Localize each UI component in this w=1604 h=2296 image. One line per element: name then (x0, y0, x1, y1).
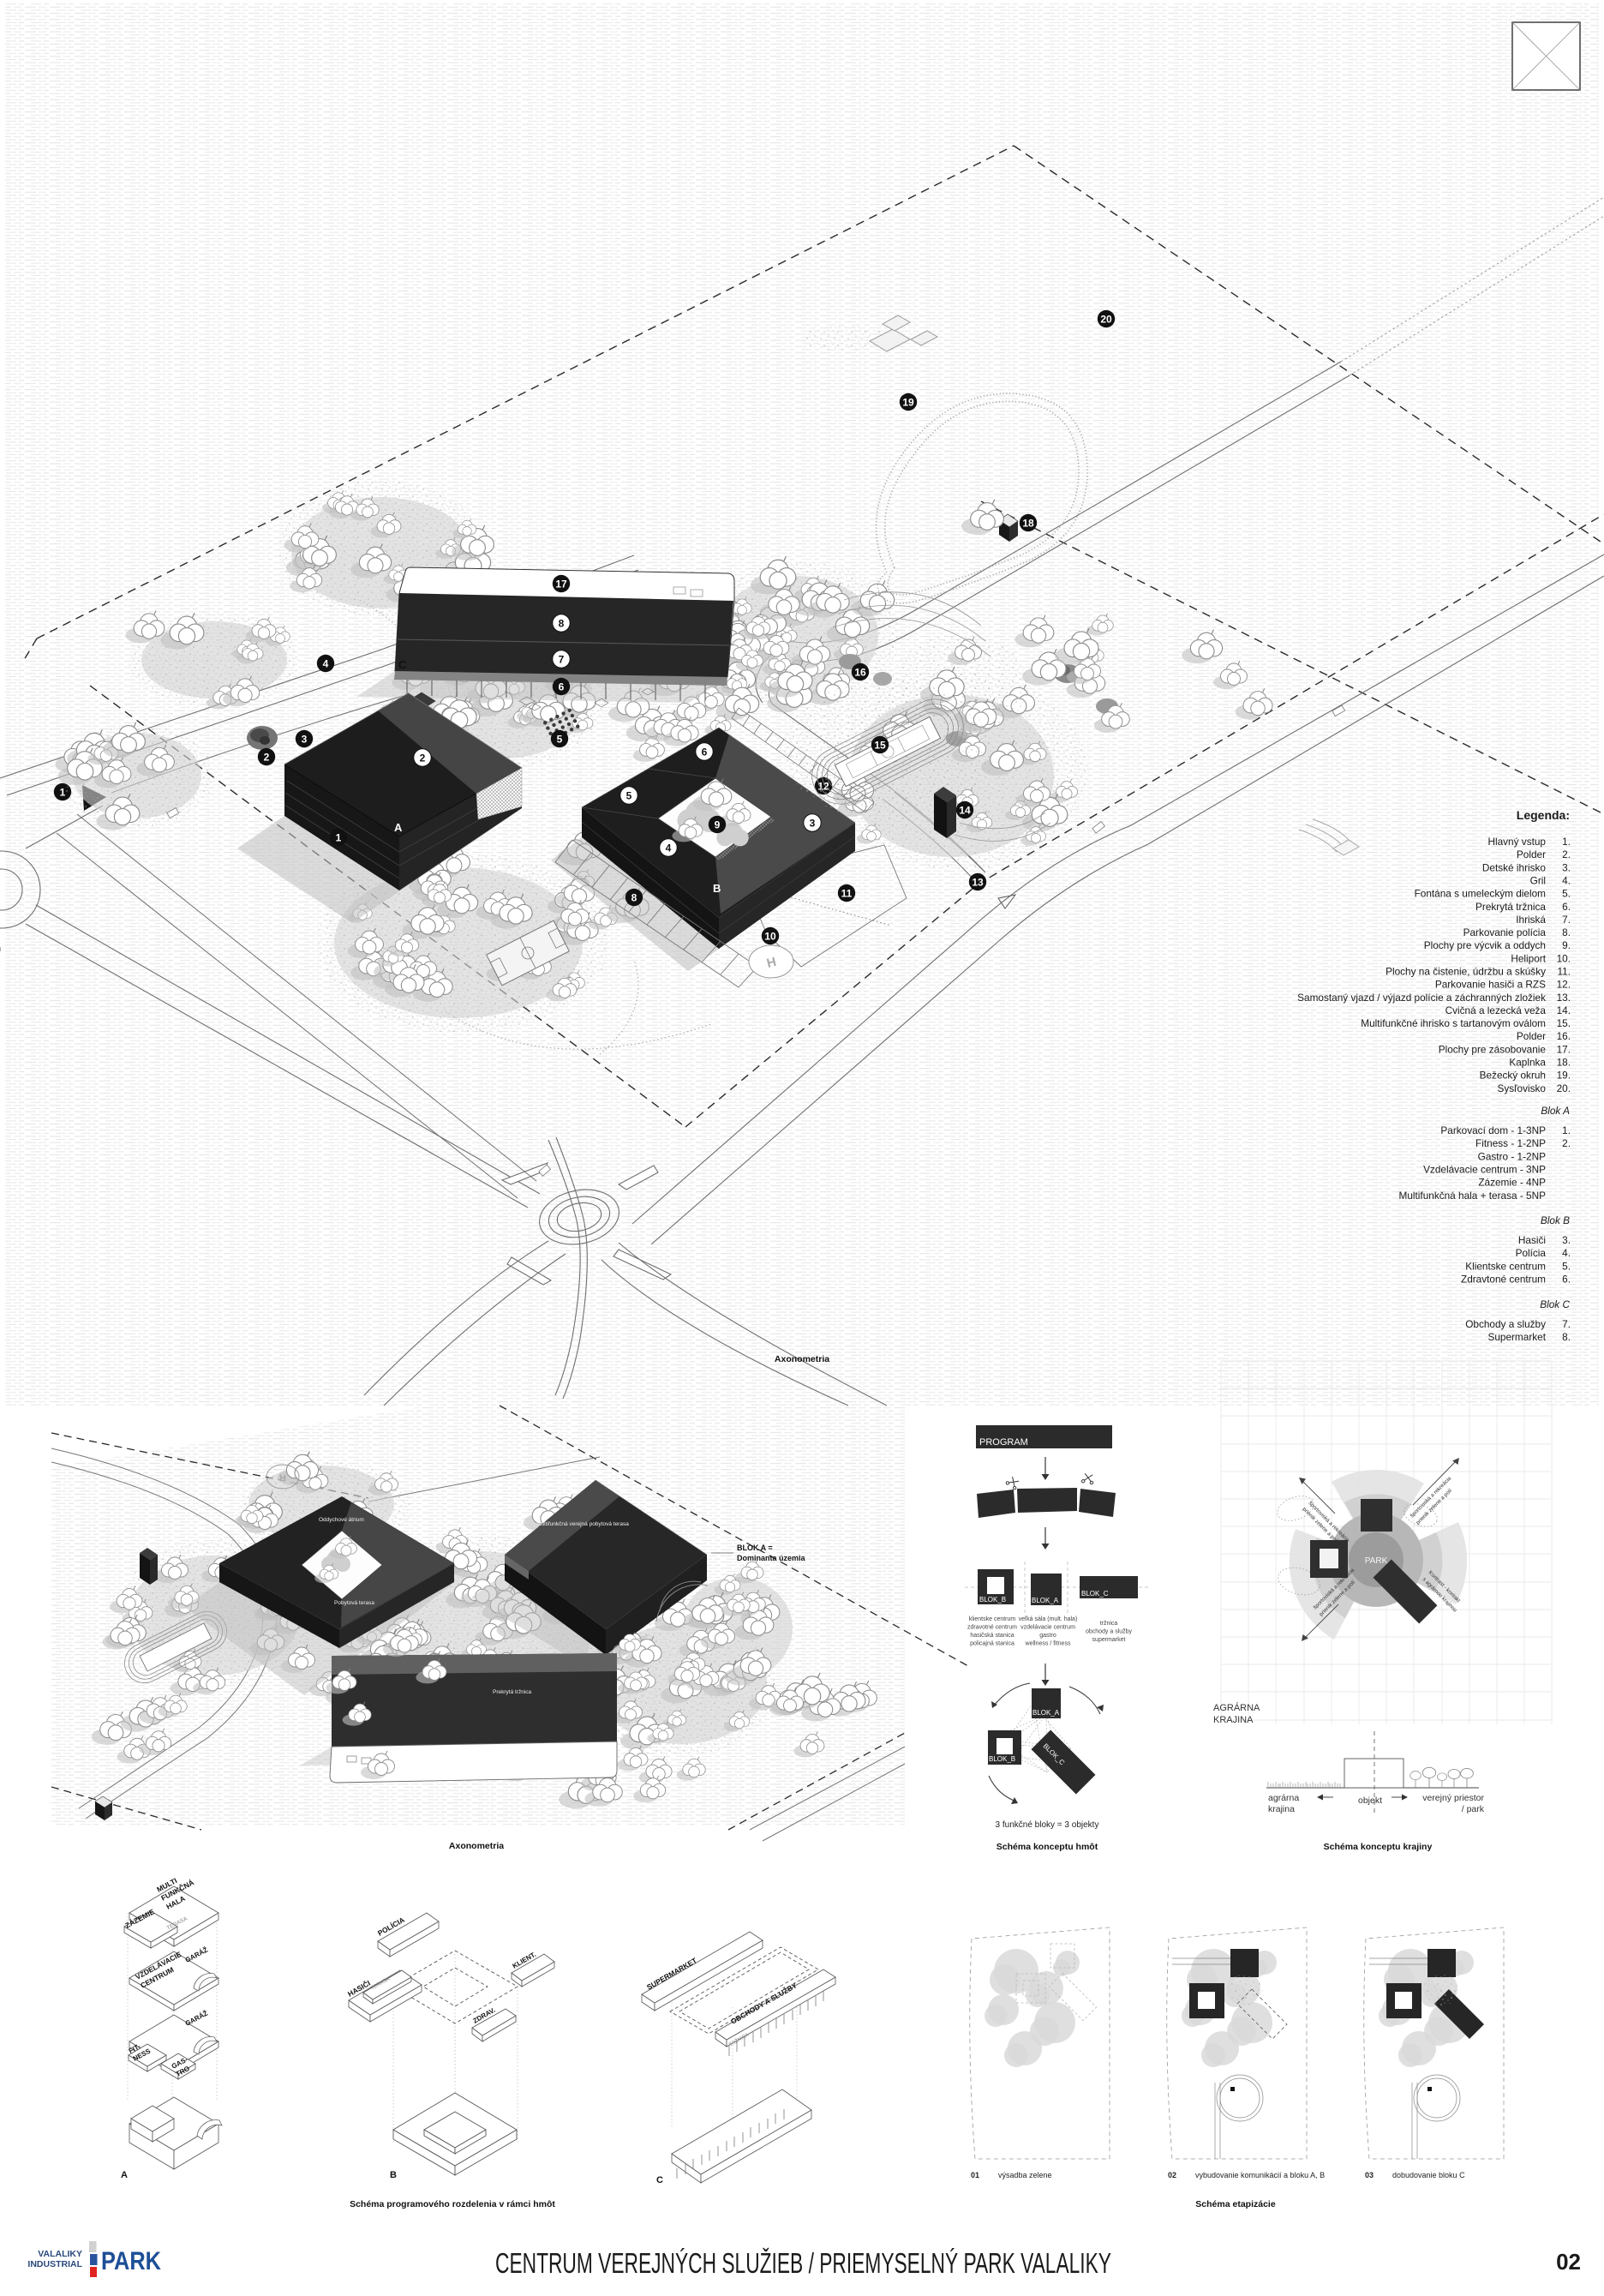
svg-text:verejný priestor: verejný priestor (1422, 1793, 1484, 1803)
svg-text:10: 10 (764, 930, 776, 942)
svg-text:Plochy pre výcvik a oddych: Plochy pre výcvik a oddych (1424, 939, 1546, 951)
svg-text:20.: 20. (1557, 1082, 1571, 1094)
svg-text:3: 3 (810, 817, 816, 829)
svg-text:Kaplnka: Kaplnka (1509, 1057, 1546, 1069)
svg-text:dobudovanie bloku C: dobudovanie bloku C (1392, 2171, 1465, 2179)
svg-text:PROGRAM: PROGRAM (979, 1437, 1028, 1448)
svg-text:6.: 6. (1562, 901, 1571, 913)
svg-text:4.: 4. (1562, 875, 1571, 887)
svg-text:Plochy na čistenie, údržbu a s: Plochy na čistenie, údržbu a skúšky (1386, 966, 1546, 978)
svg-text:8: 8 (559, 617, 565, 629)
svg-text:13.: 13. (1557, 992, 1571, 1004)
svg-text:Samostaný vjazd / výjazd políc: Samostaný vjazd / výjazd polície a záchr… (1297, 992, 1546, 1004)
svg-text:02: 02 (1556, 2249, 1581, 2275)
svg-text:Legenda:: Legenda: (1517, 808, 1570, 822)
svg-text:Pobytová terasa: Pobytová terasa (334, 1600, 374, 1606)
svg-text:H: H (279, 1473, 286, 1484)
svg-text:4.: 4. (1562, 1247, 1571, 1259)
svg-text:1.: 1. (1562, 836, 1571, 848)
svg-text:PARK: PARK (101, 2247, 161, 2275)
svg-text:Dominanta územia: Dominanta územia (737, 1554, 806, 1562)
svg-text:C: C (656, 2175, 663, 2185)
svg-text:B: B (390, 2170, 397, 2180)
svg-text:16.: 16. (1557, 1030, 1571, 1042)
svg-text:/ park: / park (1462, 1804, 1485, 1814)
svg-text:Polícia: Polícia (1516, 1247, 1547, 1259)
svg-text:výsadba zelene: výsadba zelene (998, 2171, 1052, 2179)
svg-text:Multifunkčné ihrisko s tartano: Multifunkčné ihrisko s tartanovým oválom (1361, 1017, 1546, 1029)
svg-text:BLOK_B: BLOK_B (979, 1596, 1006, 1604)
svg-text:A: A (394, 821, 403, 834)
svg-text:10.: 10. (1557, 952, 1571, 964)
svg-text:Parkovací dom - 1-3NP: Parkovací dom - 1-3NP (1440, 1124, 1546, 1136)
svg-text:5.: 5. (1562, 1260, 1571, 1272)
svg-text:15.: 15. (1557, 1017, 1571, 1029)
svg-text:Hasiči: Hasiči (1518, 1234, 1546, 1246)
svg-text:01: 01 (971, 2171, 979, 2179)
svg-text:tržnica: tržnica (1100, 1621, 1118, 1627)
svg-text:wellness / fitness: wellness / fitness (1025, 1641, 1071, 1647)
svg-text:12.: 12. (1557, 979, 1571, 991)
svg-text:Prekrytá tržnica: Prekrytá tržnica (493, 1689, 532, 1695)
svg-text:BLOK A =: BLOK A = (737, 1544, 773, 1552)
svg-text:C: C (398, 658, 407, 671)
svg-text:2: 2 (420, 752, 426, 764)
svg-text:Schéma konceptu hmôt: Schéma konceptu hmôt (997, 1842, 1098, 1852)
svg-text:Plochy pre zásobovanie: Plochy pre zásobovanie (1439, 1043, 1547, 1055)
svg-text:03: 03 (1365, 2171, 1374, 2179)
svg-text:gastro: gastro (1039, 1633, 1056, 1639)
svg-text:BLOK_C: BLOK_C (1081, 1590, 1109, 1598)
svg-text:4: 4 (323, 657, 329, 669)
svg-text:veľká sála (mult. hala): veľká sála (mult. hala) (1019, 1616, 1078, 1622)
svg-text:4: 4 (666, 842, 672, 854)
svg-text:19.: 19. (1557, 1070, 1571, 1082)
svg-text:9.: 9. (1562, 939, 1571, 951)
svg-text:9: 9 (715, 818, 721, 830)
svg-text:Fontána s umeleckým dielom: Fontána s umeleckým dielom (1415, 888, 1547, 900)
svg-text:GARÁŽ: GARÁŽ (184, 1945, 209, 1963)
svg-text:supermarket: supermarket (1092, 1637, 1126, 1643)
svg-text:5: 5 (626, 789, 632, 801)
svg-text:8.: 8. (1562, 926, 1571, 938)
svg-text:Blok B: Blok B (1541, 1214, 1570, 1226)
svg-text:8.: 8. (1562, 1331, 1571, 1343)
svg-text:Oddychové átrium: Oddychové átrium (319, 1517, 364, 1523)
svg-text:2.: 2. (1562, 1137, 1571, 1149)
svg-text:Polder: Polder (1517, 1030, 1546, 1042)
svg-text:Axonometria: Axonometria (449, 1841, 504, 1851)
svg-text:6: 6 (702, 746, 708, 758)
svg-text:hasičská stanica: hasičská stanica (970, 1633, 1014, 1639)
svg-text:15: 15 (874, 739, 886, 751)
svg-text:BLOK_A: BLOK_A (1032, 1597, 1059, 1604)
svg-text:02: 02 (1168, 2171, 1176, 2179)
svg-text:Schéma programového rozdelenia: Schéma programového rozdelenia v rámci h… (350, 2199, 555, 2209)
svg-text:Parkovanie polícia: Parkovanie polícia (1463, 926, 1547, 938)
svg-text:obchody a služby: obchody a služby (1086, 1629, 1133, 1635)
svg-text:Zázemie - 4NP: Zázemie - 4NP (1478, 1177, 1546, 1189)
svg-text:BLOK_A: BLOK_A (1032, 1709, 1060, 1717)
svg-text:1.: 1. (1562, 1124, 1571, 1136)
svg-text:Obchody a služby: Obchody a služby (1465, 1318, 1546, 1330)
svg-text:3.: 3. (1562, 1234, 1571, 1246)
svg-text:Zdravtoné centrum: Zdravtoné centrum (1461, 1274, 1546, 1286)
svg-text:7.: 7. (1562, 914, 1571, 926)
svg-text:Multifunkčná hala + terasa - 5: Multifunkčná hala + terasa - 5NP (1399, 1190, 1547, 1202)
svg-text:Ihriská: Ihriská (1516, 914, 1546, 926)
svg-text:2.: 2. (1562, 848, 1571, 860)
svg-text:17: 17 (555, 578, 567, 590)
svg-text:Gastro - 1-2NP: Gastro - 1-2NP (1478, 1150, 1546, 1162)
svg-text:Blok A: Blok A (1541, 1105, 1570, 1117)
svg-text:14.: 14. (1557, 1004, 1571, 1016)
svg-text:5.: 5. (1562, 888, 1571, 900)
svg-text:VALALIKY: VALALIKY (38, 2249, 82, 2259)
svg-text:CENTRUM VEREJNÝCH SLUŽIEB / PR: CENTRUM VEREJNÝCH SLUŽIEB / PRIEMYSELNÝ … (495, 2247, 1111, 2279)
svg-text:11: 11 (841, 887, 853, 899)
svg-text:2: 2 (264, 751, 270, 763)
svg-text:Axonometria: Axonometria (775, 1354, 829, 1364)
svg-text:objekt: objekt (1358, 1795, 1382, 1806)
svg-text:13: 13 (972, 876, 984, 888)
svg-text:vzdelávacie centrum: vzdelávacie centrum (1020, 1625, 1075, 1631)
svg-text:18.: 18. (1557, 1057, 1571, 1069)
svg-text:11.: 11. (1557, 966, 1571, 978)
svg-text:1: 1 (336, 831, 342, 843)
svg-text:Detské ihrisko: Detské ihrisko (1482, 861, 1547, 873)
svg-text:20: 20 (1100, 313, 1112, 325)
svg-text:Hlavný vstup: Hlavný vstup (1487, 836, 1546, 848)
svg-text:Schéma konceptu krajiny: Schéma konceptu krajiny (1324, 1842, 1433, 1852)
svg-text:krajina: krajina (1268, 1804, 1295, 1814)
svg-text:6: 6 (559, 680, 565, 692)
svg-text:Prekrytá tržnica: Prekrytá tržnica (1475, 901, 1546, 913)
svg-text:Heliport: Heliport (1511, 952, 1546, 964)
svg-text:Bežecký okruh: Bežecký okruh (1480, 1070, 1546, 1082)
svg-text:7: 7 (559, 653, 565, 665)
svg-text:18: 18 (1022, 517, 1034, 529)
svg-text:5: 5 (557, 733, 563, 745)
svg-text:Polder: Polder (1517, 848, 1546, 860)
svg-text:Sysľovisko: Sysľovisko (1497, 1082, 1546, 1094)
svg-text:Schéma etapizácie: Schéma etapizácie (1195, 2199, 1276, 2209)
svg-text:19: 19 (902, 396, 914, 408)
svg-text:Klientske centrum: Klientske centrum (1465, 1260, 1546, 1272)
svg-text:BLOK_B: BLOK_B (989, 1755, 1015, 1763)
svg-text:A: A (121, 2170, 128, 2180)
svg-text:GARÁŽ: GARÁŽ (184, 2009, 209, 2027)
svg-text:6.: 6. (1562, 1274, 1571, 1286)
svg-text:KRAJINA: KRAJINA (1213, 1715, 1254, 1725)
svg-text:zdravotné centrum: zdravotné centrum (967, 1625, 1017, 1631)
svg-text:B: B (713, 882, 721, 895)
svg-text:INDUSTRIAL: INDUSTRIAL (27, 2259, 82, 2269)
svg-text:3 funkčné bloky = 3 objekty: 3 funkčné bloky = 3 objekty (996, 1820, 1099, 1830)
svg-text:Parkovanie hasiči a RZS: Parkovanie hasiči a RZS (1435, 979, 1546, 991)
svg-text:policajná stanica: policajná stanica (970, 1641, 1014, 1647)
svg-text:Multifunkčná verejná pobytová: Multifunkčná verejná pobytová terasa (536, 1521, 629, 1527)
svg-text:8: 8 (631, 891, 637, 903)
svg-text:Supermarket: Supermarket (1487, 1331, 1546, 1343)
svg-text:Vzdelávacie centrum - 3NP: Vzdelávacie centrum - 3NP (1423, 1164, 1546, 1176)
svg-text:AGRÁRNA: AGRÁRNA (1213, 1702, 1260, 1713)
svg-text:vybudovanie komunikácií a blok: vybudovanie komunikácií a bloku A, B (1195, 2171, 1325, 2179)
svg-text:16: 16 (854, 666, 866, 678)
svg-text:agrárna: agrárna (1268, 1793, 1299, 1803)
svg-text:Blok C: Blok C (1540, 1298, 1570, 1310)
svg-text:7.: 7. (1562, 1318, 1571, 1330)
svg-text:Fitness - 1-2NP: Fitness - 1-2NP (1475, 1137, 1546, 1149)
svg-text:3: 3 (302, 733, 308, 745)
svg-text:klientske centrum: klientske centrum (969, 1616, 1016, 1622)
svg-text:Gril: Gril (1530, 875, 1546, 887)
svg-text:14: 14 (959, 804, 971, 816)
svg-text:3.: 3. (1562, 861, 1571, 873)
svg-text:PARK: PARK (1365, 1556, 1388, 1566)
svg-text:Cvičná a lezecká veža: Cvičná a lezecká veža (1445, 1004, 1547, 1016)
svg-text:17.: 17. (1557, 1043, 1571, 1055)
